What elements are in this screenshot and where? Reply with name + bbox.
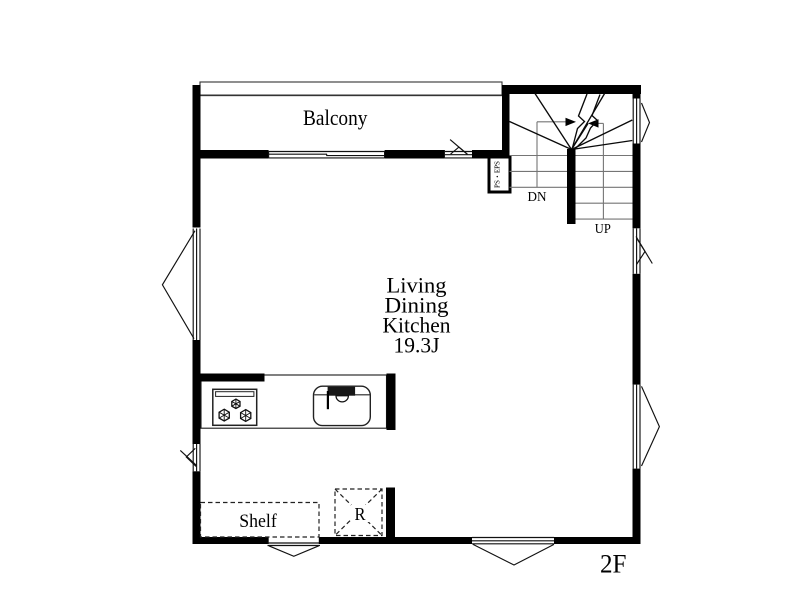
svg-text:19.3J: 19.3J	[394, 332, 440, 357]
svg-text:PS・EPS: PS・EPS	[494, 161, 502, 188]
svg-text:2F: 2F	[600, 549, 627, 578]
svg-text:DN: DN	[528, 190, 547, 205]
svg-text:UP: UP	[595, 222, 611, 237]
svg-text:Balcony: Balcony	[303, 105, 368, 130]
svg-text:Shelf: Shelf	[239, 512, 277, 532]
svg-text:R: R	[355, 504, 367, 524]
